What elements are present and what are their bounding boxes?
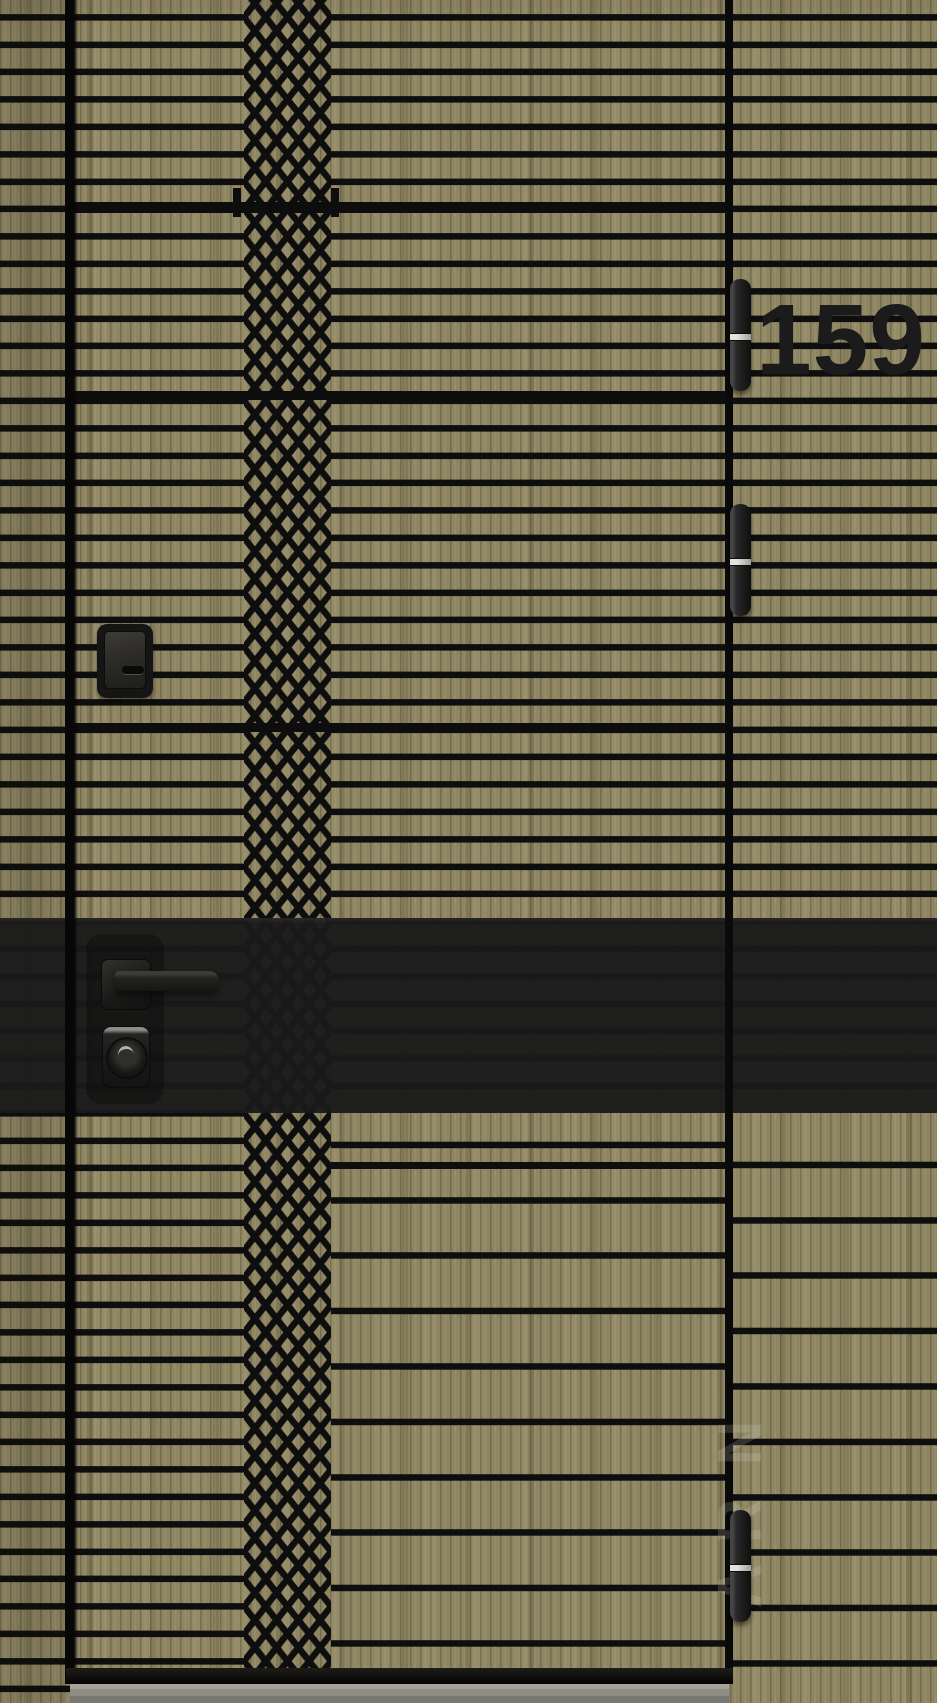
house-number: 159 <box>756 288 936 392</box>
diamond-lattice-pattern <box>244 0 331 1703</box>
switch-rocker <box>104 631 146 689</box>
switch-slot-icon <box>122 666 144 675</box>
keyhole-glint-icon <box>117 1045 135 1066</box>
seam-stub-left <box>233 188 241 217</box>
panel-groove-mid <box>66 391 733 400</box>
hinge-ring-icon <box>730 1564 751 1572</box>
hinge-ring-icon <box>730 558 751 566</box>
frame-gap-left <box>65 0 78 1684</box>
hinge-middle <box>730 504 751 616</box>
door-bottom-shadow <box>66 1668 733 1684</box>
hinge-top <box>730 279 751 391</box>
slat-groove-single <box>331 1162 733 1169</box>
hinge-ring-icon <box>730 333 751 341</box>
entrance-door-render: N R A 159 <box>0 0 937 1703</box>
frame-shade-left <box>0 0 66 1703</box>
watermark-letter: N <box>709 1403 773 1483</box>
doorbell-switch <box>97 624 153 698</box>
panel-groove-low <box>66 723 733 732</box>
door-handle-lever <box>115 971 219 991</box>
slat-grooves-right-lower <box>331 1113 729 1703</box>
threshold-floor-strip <box>70 1684 729 1703</box>
panel-seam <box>66 202 733 213</box>
lock-escutcheon <box>102 1026 150 1088</box>
hinge-bottom <box>730 1510 751 1622</box>
lock-cylinder-ring <box>106 1037 148 1079</box>
seam-stub-right <box>331 188 339 217</box>
